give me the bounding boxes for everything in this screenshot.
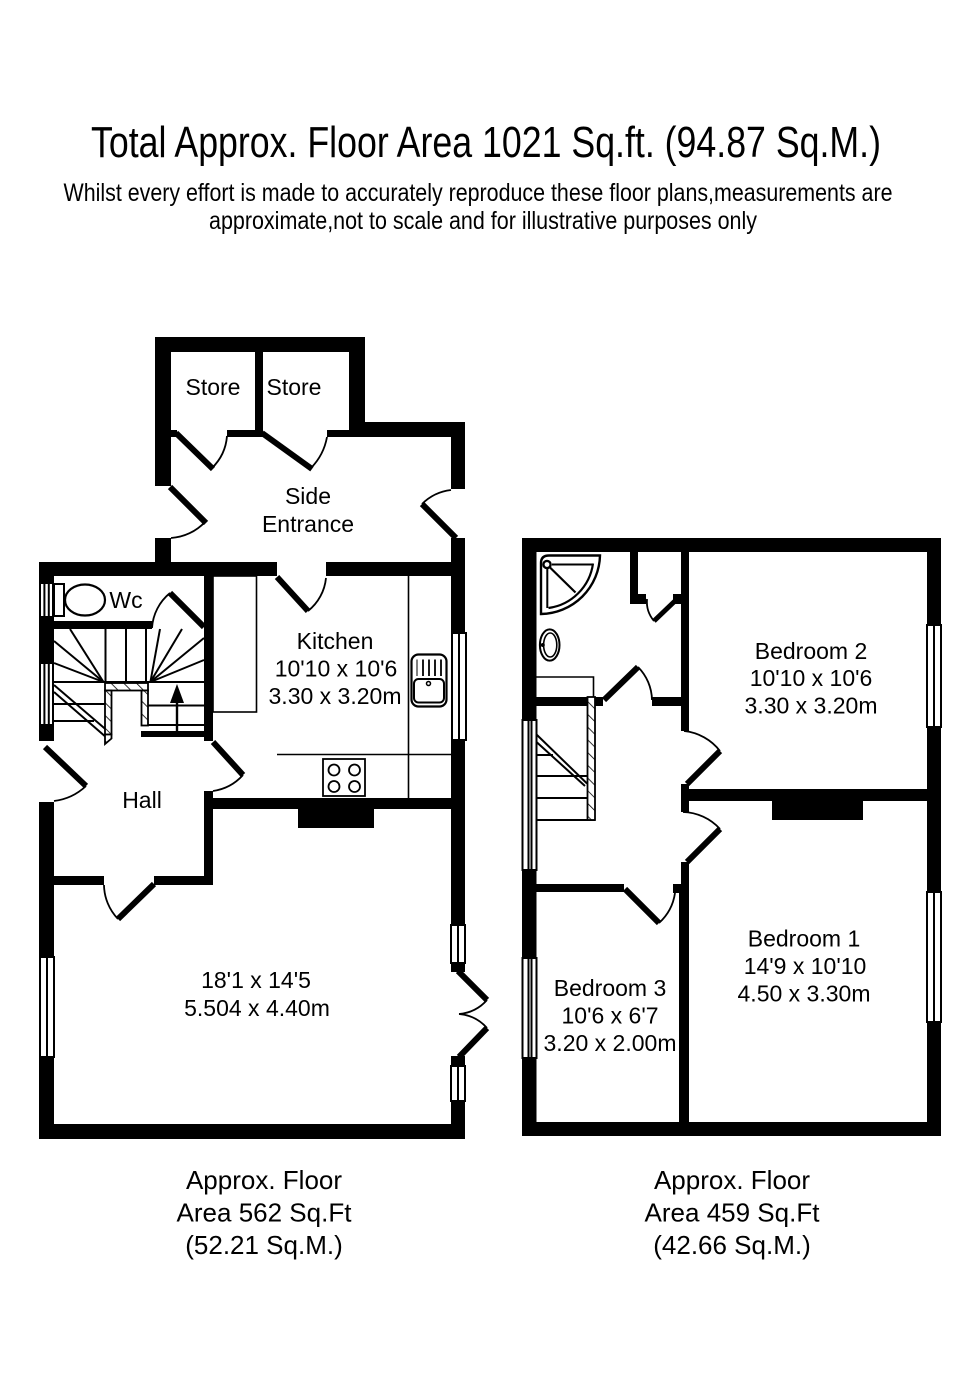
svg-text:Whilst every effort is made to: Whilst every effort is made to accuratel… — [64, 179, 893, 207]
svg-text:Bedroom 2: Bedroom 2 — [755, 638, 868, 664]
svg-text:5.504 x 4.40m: 5.504 x 4.40m — [184, 995, 330, 1021]
svg-text:Entrance: Entrance — [262, 511, 354, 537]
svg-text:Store: Store — [186, 374, 241, 400]
svg-text:Store: Store — [267, 374, 322, 400]
svg-text:3.30 x 3.20m: 3.30 x 3.20m — [269, 683, 402, 709]
svg-text:14'9 x 10'10: 14'9 x 10'10 — [744, 953, 867, 979]
svg-text:10'6 x 6'7: 10'6 x 6'7 — [561, 1003, 658, 1029]
svg-text:4.50 x 3.30m: 4.50 x 3.30m — [738, 981, 871, 1007]
svg-text:(42.66 Sq.M.): (42.66 Sq.M.) — [653, 1230, 811, 1260]
svg-text:Approx. Floor: Approx. Floor — [186, 1165, 342, 1195]
svg-text:Approx. Floor: Approx. Floor — [654, 1165, 810, 1195]
svg-text:3.30 x 3.20m: 3.30 x 3.20m — [745, 693, 878, 719]
svg-text:(52.21 Sq.M.): (52.21 Sq.M.) — [185, 1230, 343, 1260]
svg-text:Wc: Wc — [109, 587, 142, 613]
svg-text:Side: Side — [285, 483, 331, 509]
svg-text:18'1 x 14'5: 18'1 x 14'5 — [201, 967, 311, 993]
svg-text:Area 459 Sq.Ft: Area 459 Sq.Ft — [645, 1198, 821, 1228]
svg-text:Bedroom 3: Bedroom 3 — [554, 975, 667, 1001]
svg-text:approximate,not to scale and f: approximate,not to scale and for illustr… — [209, 207, 757, 235]
svg-text:10'10 x 10'6: 10'10 x 10'6 — [750, 665, 873, 691]
svg-text:Area 562 Sq.Ft: Area 562 Sq.Ft — [177, 1198, 353, 1228]
svg-text:Bedroom 1: Bedroom 1 — [748, 926, 861, 952]
svg-text:Total Approx. Floor Area 1021: Total Approx. Floor Area 1021 Sq.ft. (94… — [91, 118, 881, 167]
svg-text:Hall: Hall — [122, 787, 162, 813]
svg-text:10'10 x 10'6: 10'10 x 10'6 — [275, 656, 398, 682]
svg-text:Kitchen: Kitchen — [297, 628, 374, 654]
svg-text:3.20 x 2.00m: 3.20 x 2.00m — [544, 1030, 677, 1056]
